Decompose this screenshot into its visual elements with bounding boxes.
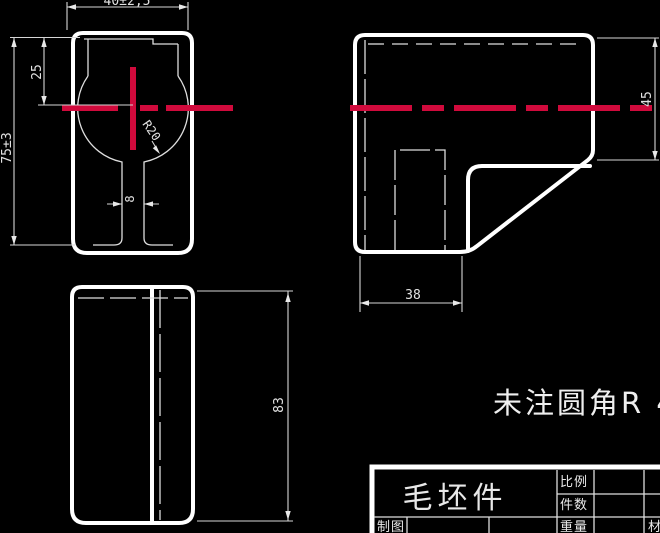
cad-drawing-page: { "canvas": { "background": "#000000", "…	[0, 0, 660, 533]
fillet-note-text: 未注圆角R 4	[493, 386, 660, 420]
drafter-label: 制图	[377, 520, 405, 533]
side-width-dim-text: 38	[405, 288, 421, 303]
material-label: 材料	[648, 520, 660, 533]
scale-label: 比例	[560, 475, 588, 490]
quantity-label: 件数	[560, 498, 588, 513]
canvas-background	[0, 0, 660, 533]
part-name-text: 毛坯件	[403, 481, 508, 516]
side-height-dim-text: 45	[640, 91, 655, 107]
top-length-dim-text: 83	[272, 397, 287, 413]
front-width-dim-text: 40±2,5	[104, 0, 151, 9]
front-offset-dim-text: 25	[30, 64, 45, 80]
front-slot-dim-text: 8	[123, 195, 137, 202]
cad-canvas[interactable]: 40±2,5 75±3 25 8 R20	[0, 0, 660, 533]
weight-label: 重量	[560, 519, 588, 533]
front-height-dim-text: 75±3	[0, 132, 15, 163]
